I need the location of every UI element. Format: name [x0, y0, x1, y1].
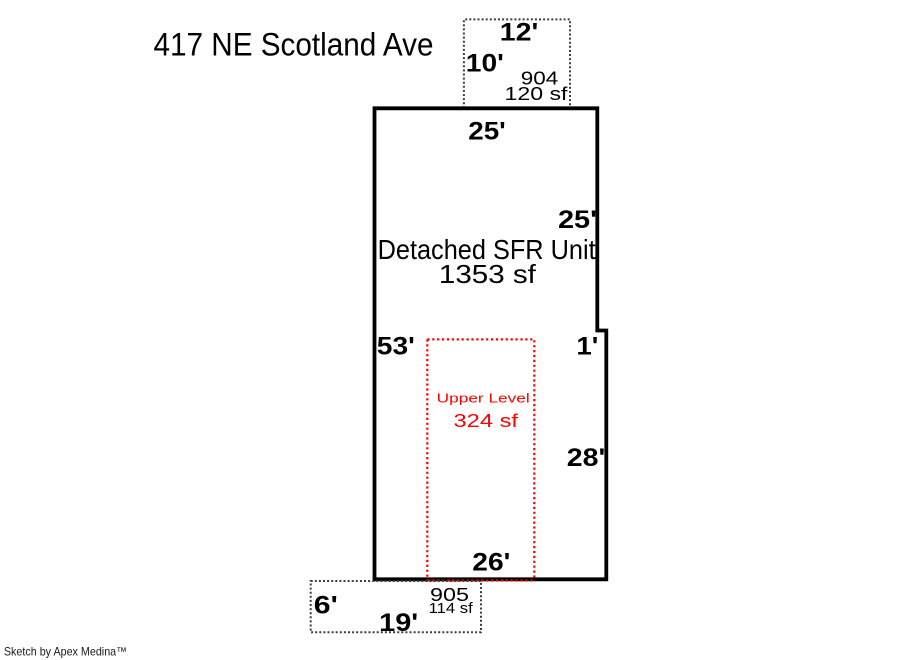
- svg-text:Upper Level: Upper Level: [437, 391, 530, 406]
- svg-text:1353 sf: 1353 sf: [439, 259, 537, 289]
- svg-text:28': 28': [567, 444, 606, 472]
- svg-text:1': 1': [576, 333, 598, 361]
- svg-text:417 NE Scotland Ave: 417 NE Scotland Ave: [154, 27, 434, 63]
- svg-text:53': 53': [377, 333, 415, 361]
- svg-text:26': 26': [472, 549, 510, 577]
- svg-text:19': 19': [379, 609, 418, 637]
- svg-text:6': 6': [314, 592, 338, 620]
- svg-text:12': 12': [500, 19, 539, 47]
- svg-text:25': 25': [558, 206, 597, 234]
- svg-text:25': 25': [468, 118, 506, 146]
- svg-text:114 sf: 114 sf: [429, 601, 474, 617]
- svg-text:120 sf: 120 sf: [505, 84, 569, 104]
- svg-text:10': 10': [466, 50, 504, 78]
- svg-text:Sketch by Apex Medina™: Sketch by Apex Medina™: [4, 645, 127, 659]
- svg-text:324 sf: 324 sf: [454, 410, 520, 431]
